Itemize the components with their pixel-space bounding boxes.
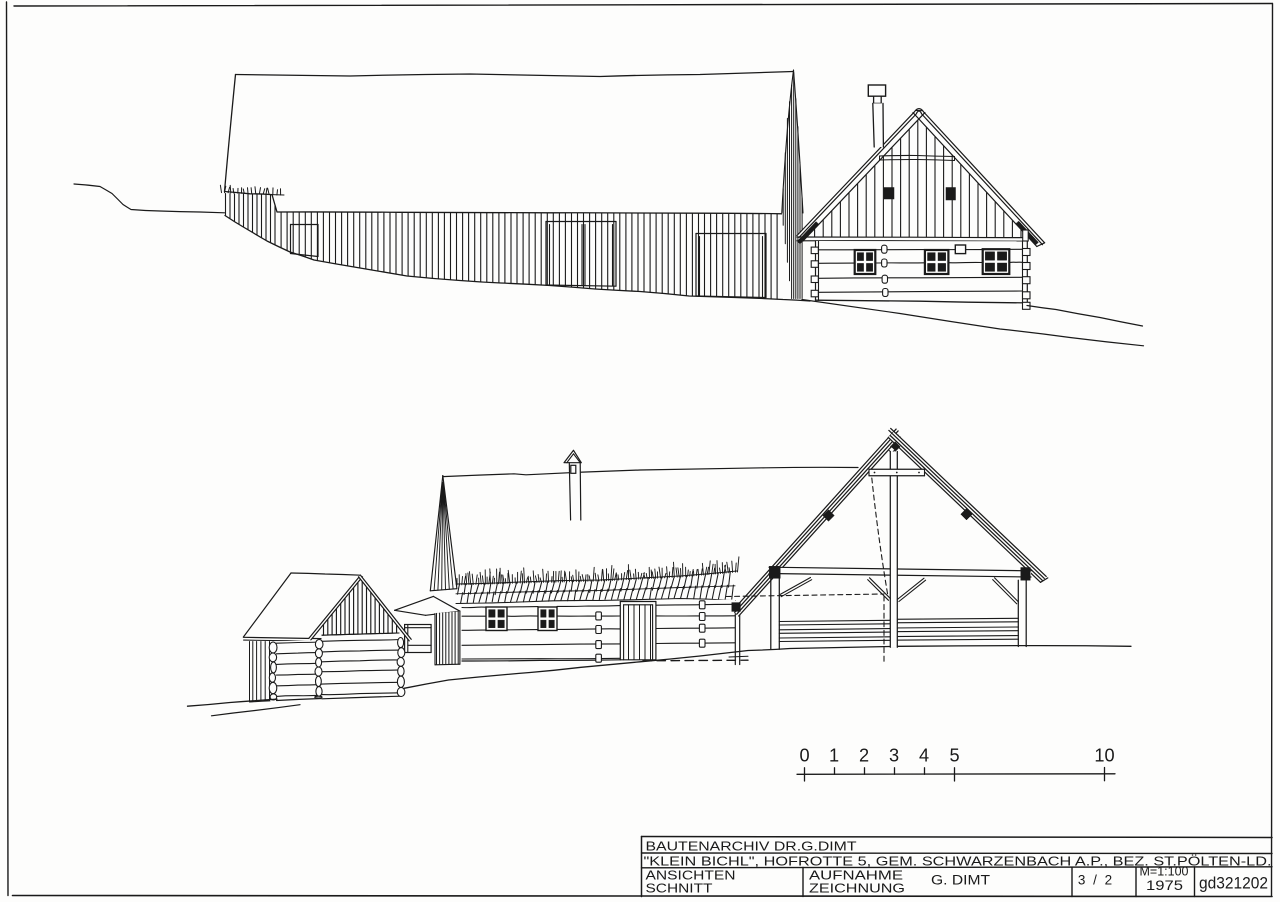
svg-text:BAUTENARCHIV DR.G.DIMT: BAUTENARCHIV DR.G.DIMT xyxy=(646,839,857,854)
svg-text:SCHNITT: SCHNITT xyxy=(646,881,713,896)
svg-text:G. DIMT: G. DIMT xyxy=(931,873,990,888)
svg-text:2: 2 xyxy=(859,746,869,766)
svg-text:1975: 1975 xyxy=(1146,878,1183,893)
svg-text:3 / 2: 3 / 2 xyxy=(1078,873,1114,888)
svg-text:M=1:100: M=1:100 xyxy=(1140,864,1189,879)
svg-text:ZEICHNUNG: ZEICHNUNG xyxy=(809,881,905,896)
svg-text:10: 10 xyxy=(1094,746,1114,766)
svg-text:4: 4 xyxy=(919,746,929,766)
svg-text:3: 3 xyxy=(889,746,899,766)
svg-text:gd321202: gd321202 xyxy=(1199,875,1268,893)
svg-text:5: 5 xyxy=(949,746,959,766)
svg-text:0: 0 xyxy=(799,746,809,766)
svg-text:1: 1 xyxy=(829,746,839,766)
